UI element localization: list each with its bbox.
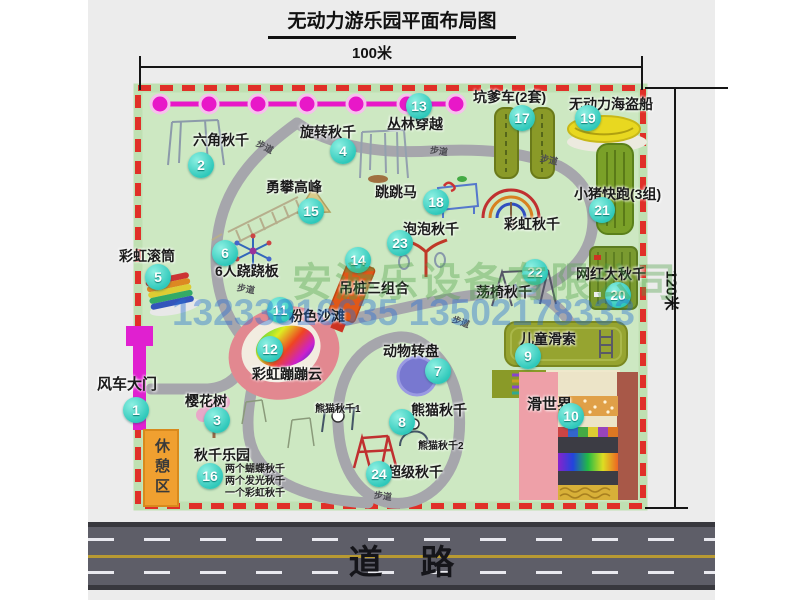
badge-24: 24: [366, 461, 392, 487]
badge-19: 19: [575, 105, 601, 131]
badge-6: 6: [212, 240, 238, 266]
label-jumping-horse: 跳跳马: [375, 182, 417, 202]
label-swing-paradise: 秋千乐园: [194, 445, 250, 465]
walkway-label: 步道: [429, 143, 449, 158]
label-super-swing: 超级秋千: [387, 462, 443, 482]
badge-12: 12: [257, 336, 283, 362]
label-panda-swing-2: 熊猫秋千2: [418, 437, 464, 452]
badge-15: 15: [298, 198, 324, 224]
label-rest-area: 休憩区: [151, 438, 172, 498]
badge-4: 4: [330, 138, 356, 164]
label-windmill-gate: 风车大门: [97, 373, 157, 394]
label-pit-cars: 坑爹车(2套): [473, 87, 546, 107]
note-line: 一个彩虹秋千: [225, 488, 285, 500]
badge-3: 3: [204, 407, 230, 433]
watermark-phone: 13233816635 13502178333: [172, 292, 635, 334]
label-rainbow-cloud: 彩虹蹦蹦云: [252, 364, 322, 384]
badge-17: 17: [509, 105, 535, 131]
badge-2: 2: [188, 152, 214, 178]
swing-paradise-notes: 两个蝴蝶秋千 两个发光秋千 一个彩虹秋千: [225, 464, 285, 500]
label-animal-turntable: 动物转盘: [383, 341, 439, 361]
slide-world-shape: [519, 372, 638, 500]
badge-7: 7: [425, 358, 451, 384]
note-line: 两个发光秋千: [225, 476, 285, 488]
note-line: 两个蝴蝶秋千: [225, 464, 285, 476]
badge-16: 16: [197, 463, 223, 489]
label-piggy-run: 小猪快跑(3组): [574, 184, 661, 204]
badge-5: 5: [145, 264, 171, 290]
badge-13: 13: [406, 93, 432, 119]
label-panda-swing-1: 熊猫秋千1: [315, 400, 361, 415]
walkway-label: 步道: [373, 488, 393, 503]
label-rainbow-roller: 彩虹滚筒: [119, 246, 175, 266]
badge-21: 21: [589, 197, 615, 223]
label-rainbow-swing: 彩虹秋千: [504, 214, 560, 234]
label-hexagon-swing: 六角秋千: [193, 130, 249, 150]
road-label: 道 路: [88, 535, 715, 584]
label-climbing-peak: 勇攀高峰: [266, 177, 322, 197]
badge-18: 18: [423, 189, 449, 215]
page-title: 无动力游乐园平面布局图: [268, 6, 516, 39]
badge-10: 10: [558, 403, 584, 429]
badge-9: 9: [515, 343, 541, 369]
label-panda-swing: 熊猫秋千: [411, 400, 467, 420]
plan-canvas: 无动力游乐园平面布局图 100米 120米 风车大门 六角秋千 樱花树 旋转秋千…: [0, 0, 800, 600]
badge-8: 8: [389, 409, 415, 435]
road: 道 路: [88, 522, 715, 590]
badge-1: 1: [123, 397, 149, 423]
width-dimension-label: 100米: [352, 42, 392, 63]
